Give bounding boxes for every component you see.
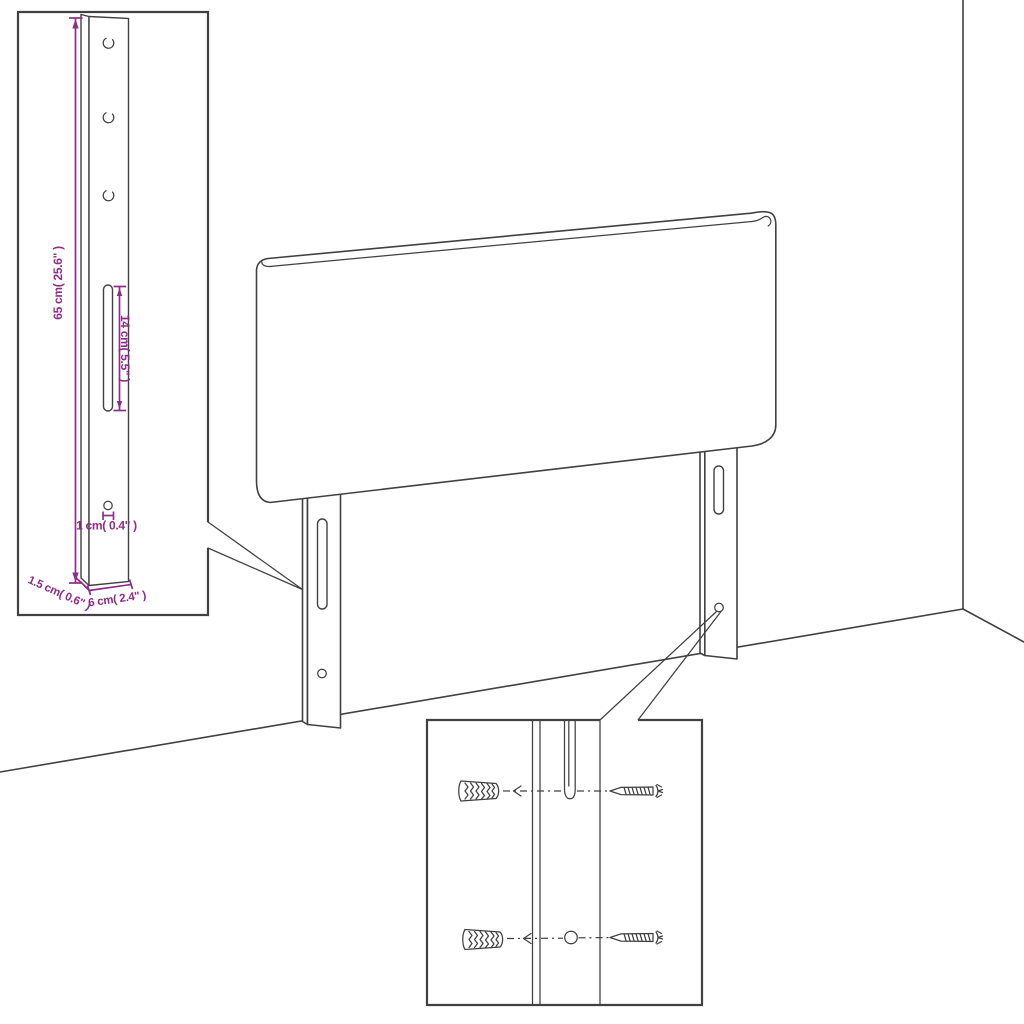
diagram-canvas: 65 cm( 25.6" ) 14 cm( 5.5" ) 1 cm( 0.4" … bbox=[0, 0, 1024, 1024]
left-leg-slot bbox=[318, 519, 328, 609]
headboard-panel bbox=[257, 212, 776, 503]
hole-label: 1 cm( 0.4" ) bbox=[76, 519, 137, 533]
slot-label: 14 cm( 5.5" ) bbox=[118, 315, 132, 382]
headboard-dimension-diagram: 65 cm( 25.6" ) 14 cm( 5.5" ) 1 cm( 0.4" … bbox=[0, 0, 1024, 1024]
headboard-left-leg bbox=[303, 490, 341, 728]
callout-left-wedge bbox=[208, 522, 303, 590]
bracket-side-face bbox=[81, 15, 89, 586]
headboard-outline bbox=[257, 212, 776, 503]
floor-line-right bbox=[963, 609, 1024, 642]
bracket-drawing bbox=[81, 15, 129, 586]
headboard-right-leg bbox=[700, 435, 737, 659]
height-label: 65 cm( 25.6" ) bbox=[51, 246, 65, 320]
leg-detail-inset: 65 cm( 25.6" ) 14 cm( 5.5" ) 1 cm( 0.4" … bbox=[18, 12, 208, 615]
mounting-detail-inset bbox=[427, 720, 702, 1005]
right-leg-slot bbox=[714, 466, 724, 514]
bracket-slot bbox=[104, 285, 113, 411]
